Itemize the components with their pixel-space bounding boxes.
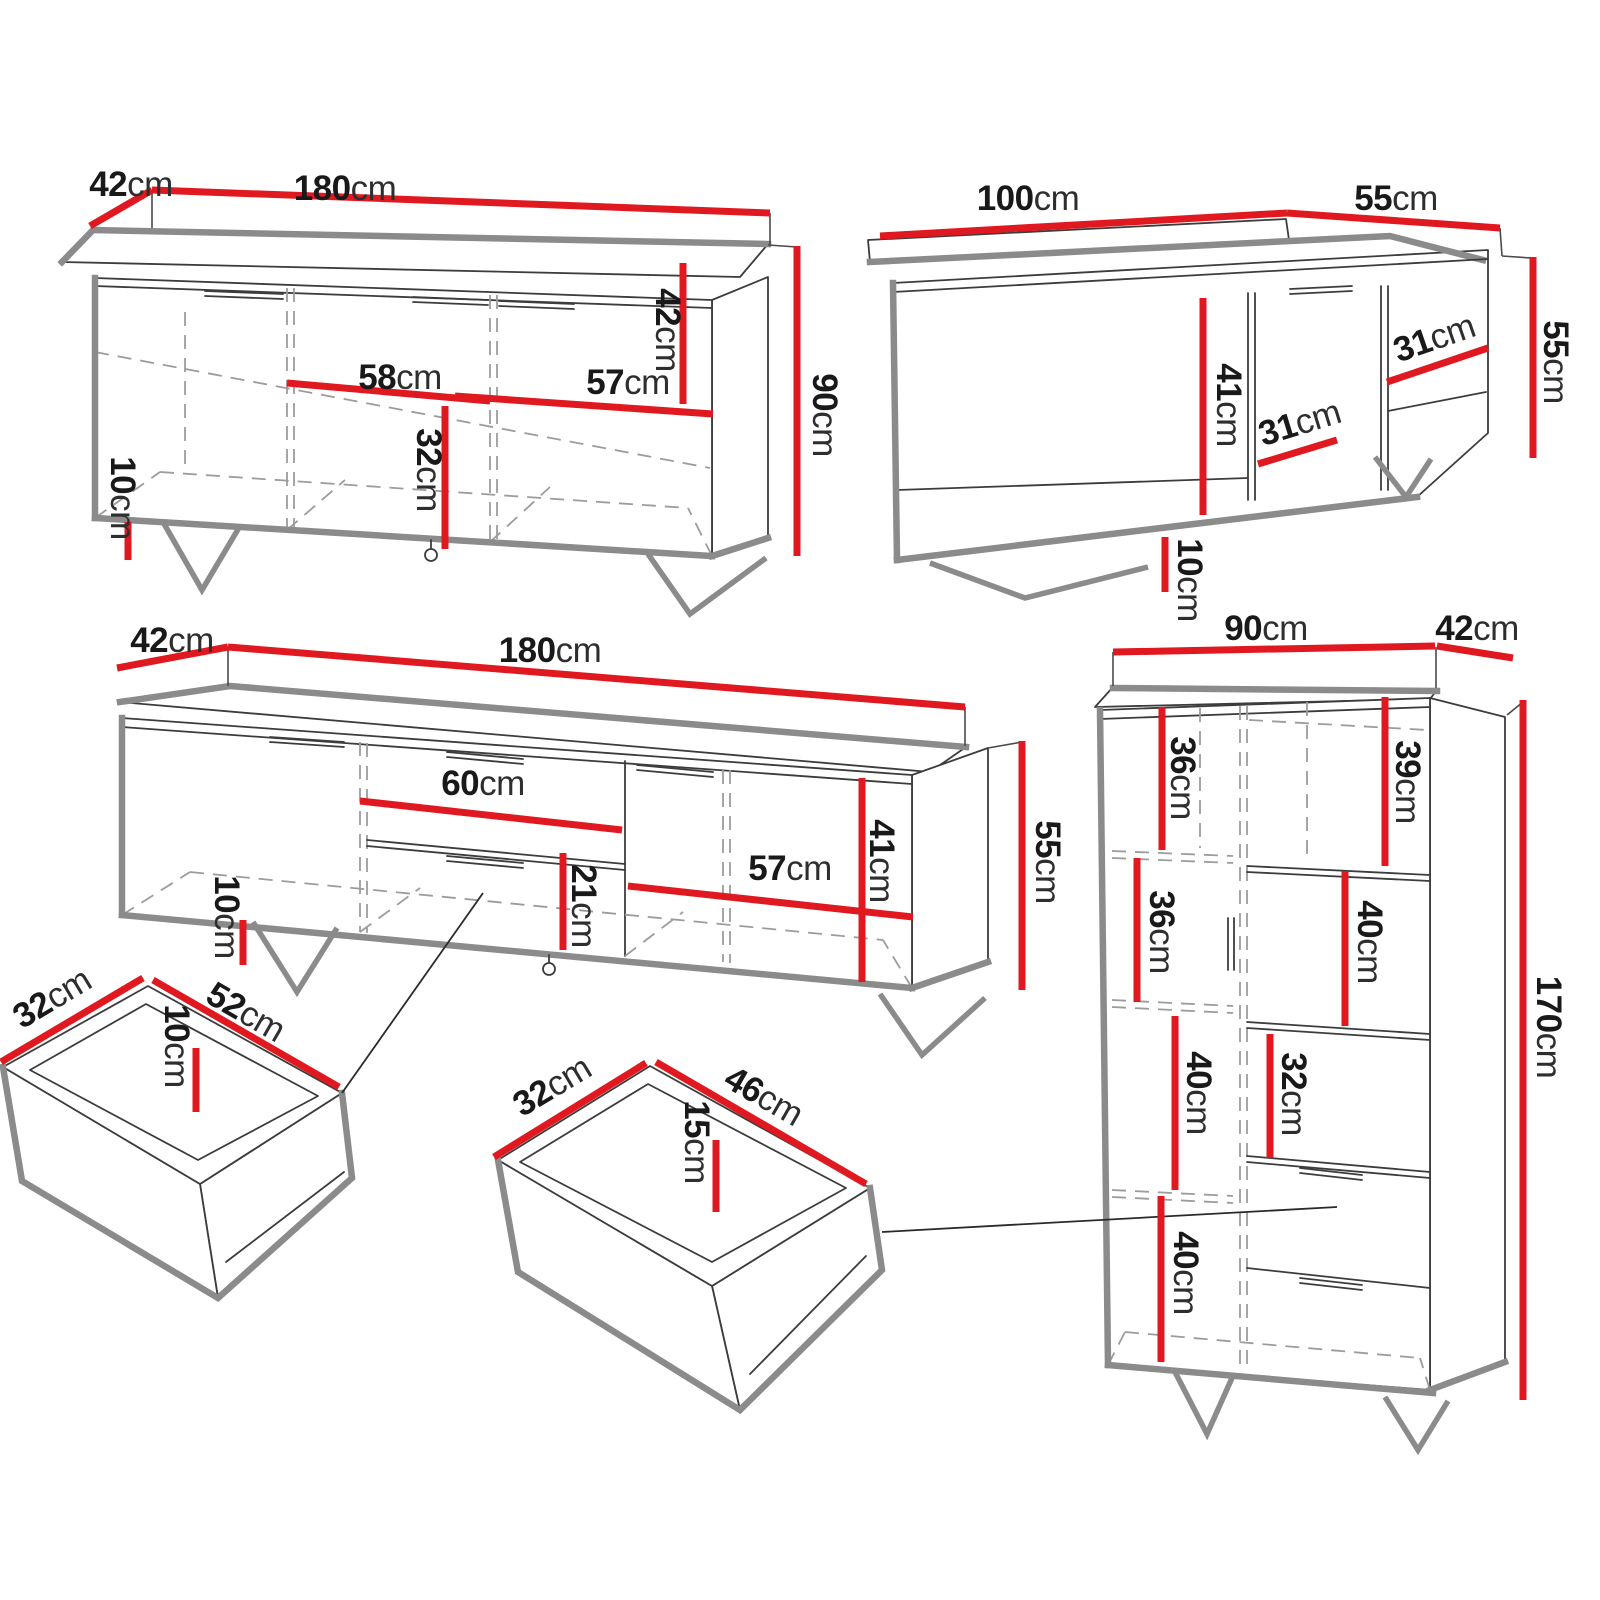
coffee-table-inner-height-label: 41cm [1209,363,1248,447]
sideboard-lower-height-label: 32cm [409,428,448,512]
sideboard-leg-label: 10cm [103,456,142,540]
cabinet-shelf-mid-right-label: 40cm [1350,900,1389,984]
cabinet-height-label: 170cm [1529,976,1568,1079]
cabinet-depth-label: 42cm [1435,609,1519,648]
sideboard-right-width-label: 57cm [586,363,670,402]
drawer-46-height-label: 15cm [677,1100,716,1184]
coffee-table-height-label: 55cm [1536,320,1575,404]
cabinet-shelf-lower-left-label: 40cm [1179,1051,1218,1135]
tv-stand-drawer-height-label: 21cm [564,864,603,948]
coffee-table-width-label: 100cm [977,179,1080,218]
tv-stand-width-label: 180cm [499,631,602,670]
tv-stand-depth-label: 42cm [130,621,214,660]
sideboard-leg-left [163,522,240,590]
sideboard-mid-width-label: 58cm [358,358,442,397]
drawer-52-height-label: 10cm [157,1004,196,1088]
coffee-table-depth-label: 55cm [1354,179,1438,218]
cabinet-width-label: 90cm [1224,609,1308,648]
coffee-table-leg-label: 10cm [1170,538,1209,622]
sideboard-depth-label: 42cm [89,165,173,204]
sideboard-foot-knob [425,549,437,561]
cabinet-leg-right [1385,1397,1448,1450]
sideboard-width-label: 180cm [294,169,397,208]
tv-stand-leg-label: 10cm [207,875,246,959]
cabinet-shelf-top-left-label: 36cm [1163,736,1202,820]
tv-stand-drawer-width-label: 60cm [441,764,525,803]
tv-stand-door-width-label: 57cm [748,849,832,888]
tv-stand-foot-knob [543,963,555,975]
furniture-dimension-diagram: 42cm 180cm 90cm 42cm 58cm 57cm 32cm 10cm… [0,0,1600,1600]
sideboard-leg-right [648,554,766,614]
tv-stand-height-label: 55cm [1028,820,1067,904]
sideboard-drawing [62,190,797,614]
cabinet-shelf-bottom-left-label: 40cm [1166,1231,1205,1315]
sideboard-height-label: 90cm [805,373,844,457]
cabinet-shelf-lower-right-label: 32cm [1274,1052,1313,1136]
tv-stand-leg-right [880,994,985,1055]
cabinet-shelf-top-right-label: 39cm [1388,740,1427,824]
sideboard-inner-height-label: 42cm [648,288,687,372]
coffee-table-leg-left [930,563,1148,598]
diagram-canvas: 42cm 180cm 90cm 42cm 58cm 57cm 32cm 10cm… [0,0,1600,1600]
tv-stand-inner-height-label: 41cm [862,819,901,903]
cabinet-leg-left [1175,1372,1232,1434]
cabinet-shelf-mid-left-label: 36cm [1142,890,1181,974]
